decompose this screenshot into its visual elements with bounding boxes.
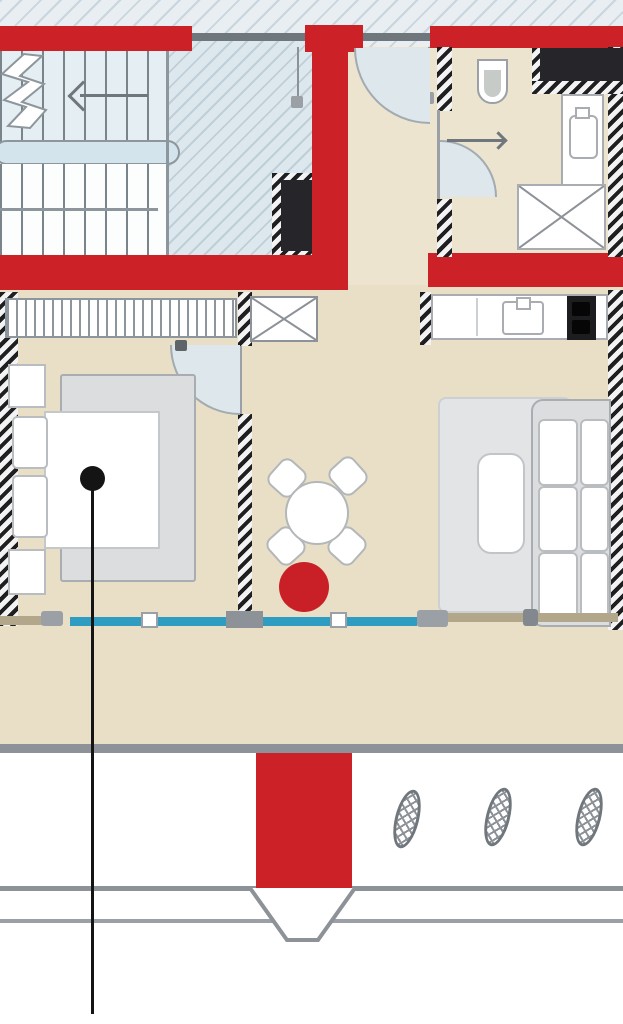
wall-mid-left <box>0 255 348 290</box>
wall-t-stem <box>312 50 348 262</box>
shower-tray <box>517 184 606 250</box>
toilet <box>477 59 508 104</box>
parapet-left <box>0 616 46 625</box>
stair-break-line <box>0 52 56 132</box>
bathroom-wall-under-shaft <box>532 80 623 94</box>
burner-top <box>572 302 590 316</box>
shrub-symbol-3 <box>570 785 608 849</box>
door-post-left-knob <box>291 96 303 108</box>
glazing-segment-3 <box>263 617 332 626</box>
stairs-lower-flight <box>0 164 168 258</box>
bathroom-wall-left-upper <box>437 47 452 111</box>
bedroom-door-knob <box>175 340 187 351</box>
bed-pillow-top <box>12 416 48 469</box>
wardrobe <box>5 298 237 338</box>
door-post-left <box>297 47 299 99</box>
stair-landing <box>0 140 180 165</box>
wall-top-left <box>0 26 192 51</box>
washbasin-tap <box>575 107 590 119</box>
burner-bottom <box>572 320 590 334</box>
bedroom-door-line <box>240 346 242 416</box>
wall-top-thin-line <box>192 33 309 41</box>
bathroom-dark-counter <box>540 48 623 81</box>
toilet-bowl <box>484 70 501 97</box>
cooktop <box>567 296 596 340</box>
shrub-symbol-1 <box>388 787 426 851</box>
wall-mid-right <box>428 253 623 287</box>
sofa-seat-1 <box>538 419 578 486</box>
washbasin-counter <box>561 94 604 186</box>
coffee-table <box>477 453 525 554</box>
partition-wall-lower <box>238 414 252 625</box>
entrance-canopy-outline <box>240 882 365 946</box>
nightstand-top <box>8 364 46 408</box>
stair-handrail-line <box>0 208 158 211</box>
entrance-pier <box>256 753 352 889</box>
counter-divider-line <box>476 298 478 336</box>
bed-pillow-bottom <box>12 475 48 538</box>
annotation-leader-line <box>91 478 94 1014</box>
dining-table <box>285 481 349 545</box>
livingroom-wall-left <box>420 292 431 345</box>
entry-opening-thin-line <box>363 33 430 41</box>
stair-edge-line <box>166 47 169 258</box>
sofa-seat-3 <box>538 552 578 619</box>
glazing-segment-2 <box>158 617 228 626</box>
washbasin <box>569 115 598 159</box>
wall-top-right <box>430 26 623 48</box>
sofa-back-1 <box>580 419 609 486</box>
duct-cross-box <box>250 296 318 342</box>
nightstand-bottom <box>8 549 46 595</box>
floor-plan <box>0 0 623 1024</box>
parapet-right-knob <box>523 609 538 626</box>
kitchen-tap <box>516 297 531 310</box>
bathroom-wall-left-lower <box>437 199 452 257</box>
red-marker-circle <box>279 562 329 612</box>
shrub-symbol-2 <box>479 785 517 849</box>
glazing-joint-1 <box>141 612 158 628</box>
sofa-seat-2 <box>538 486 578 552</box>
sofa-back-2 <box>580 486 609 552</box>
parapet-left-knob <box>41 611 63 626</box>
parapet-right-cap <box>417 610 448 627</box>
shower-cross-lines <box>519 186 604 248</box>
glazing-pier <box>226 611 263 628</box>
sofa-back-3 <box>580 552 609 619</box>
duct-cross-lines <box>252 298 316 340</box>
glazing-joint-2 <box>330 612 347 628</box>
glazing-segment-1 <box>70 617 143 626</box>
glazing-segment-4 <box>347 617 417 626</box>
kitchen-counter <box>431 294 608 340</box>
annotation-dot <box>80 466 105 491</box>
